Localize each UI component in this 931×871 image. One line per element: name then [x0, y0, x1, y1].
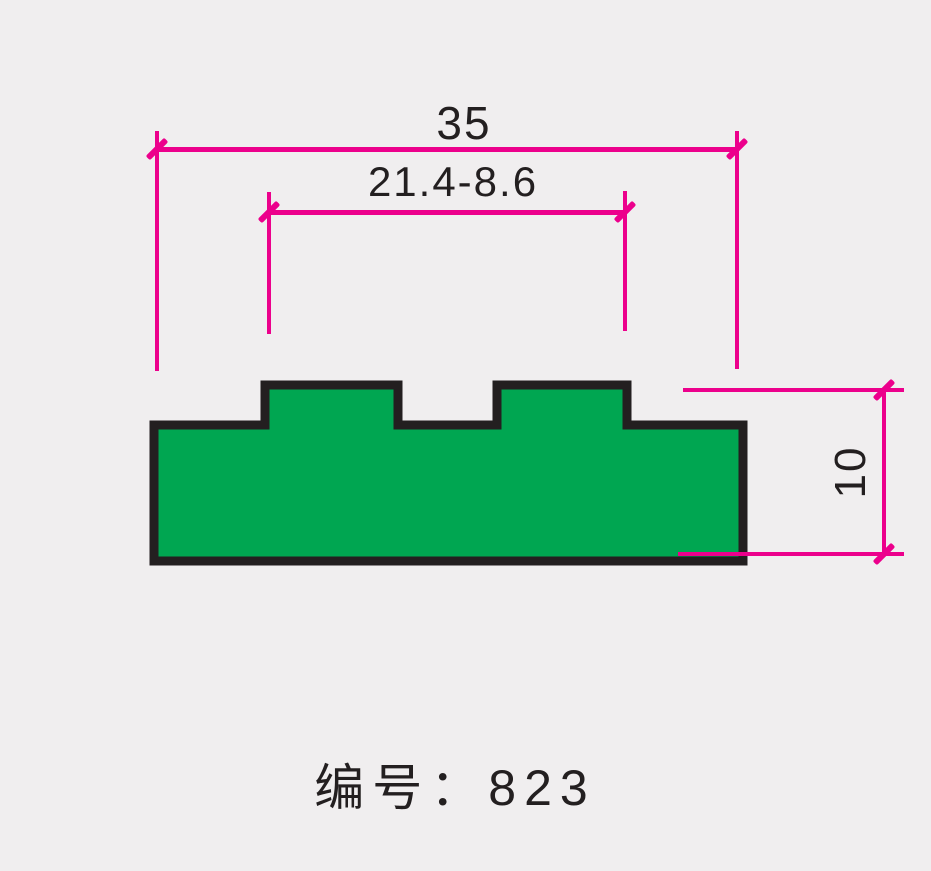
- extension-line-height-top: [683, 388, 904, 392]
- dimension-label-height: 10: [828, 412, 874, 532]
- dimension-line-height: [882, 389, 886, 555]
- profile-shape: [0, 0, 931, 871]
- profile-polygon: [154, 385, 743, 561]
- extension-line-height-bottom: [678, 552, 904, 556]
- drawing-canvas: 35 21.4-8.6 10 编号：823: [0, 0, 931, 871]
- part-number-caption: 编号：823: [205, 748, 705, 820]
